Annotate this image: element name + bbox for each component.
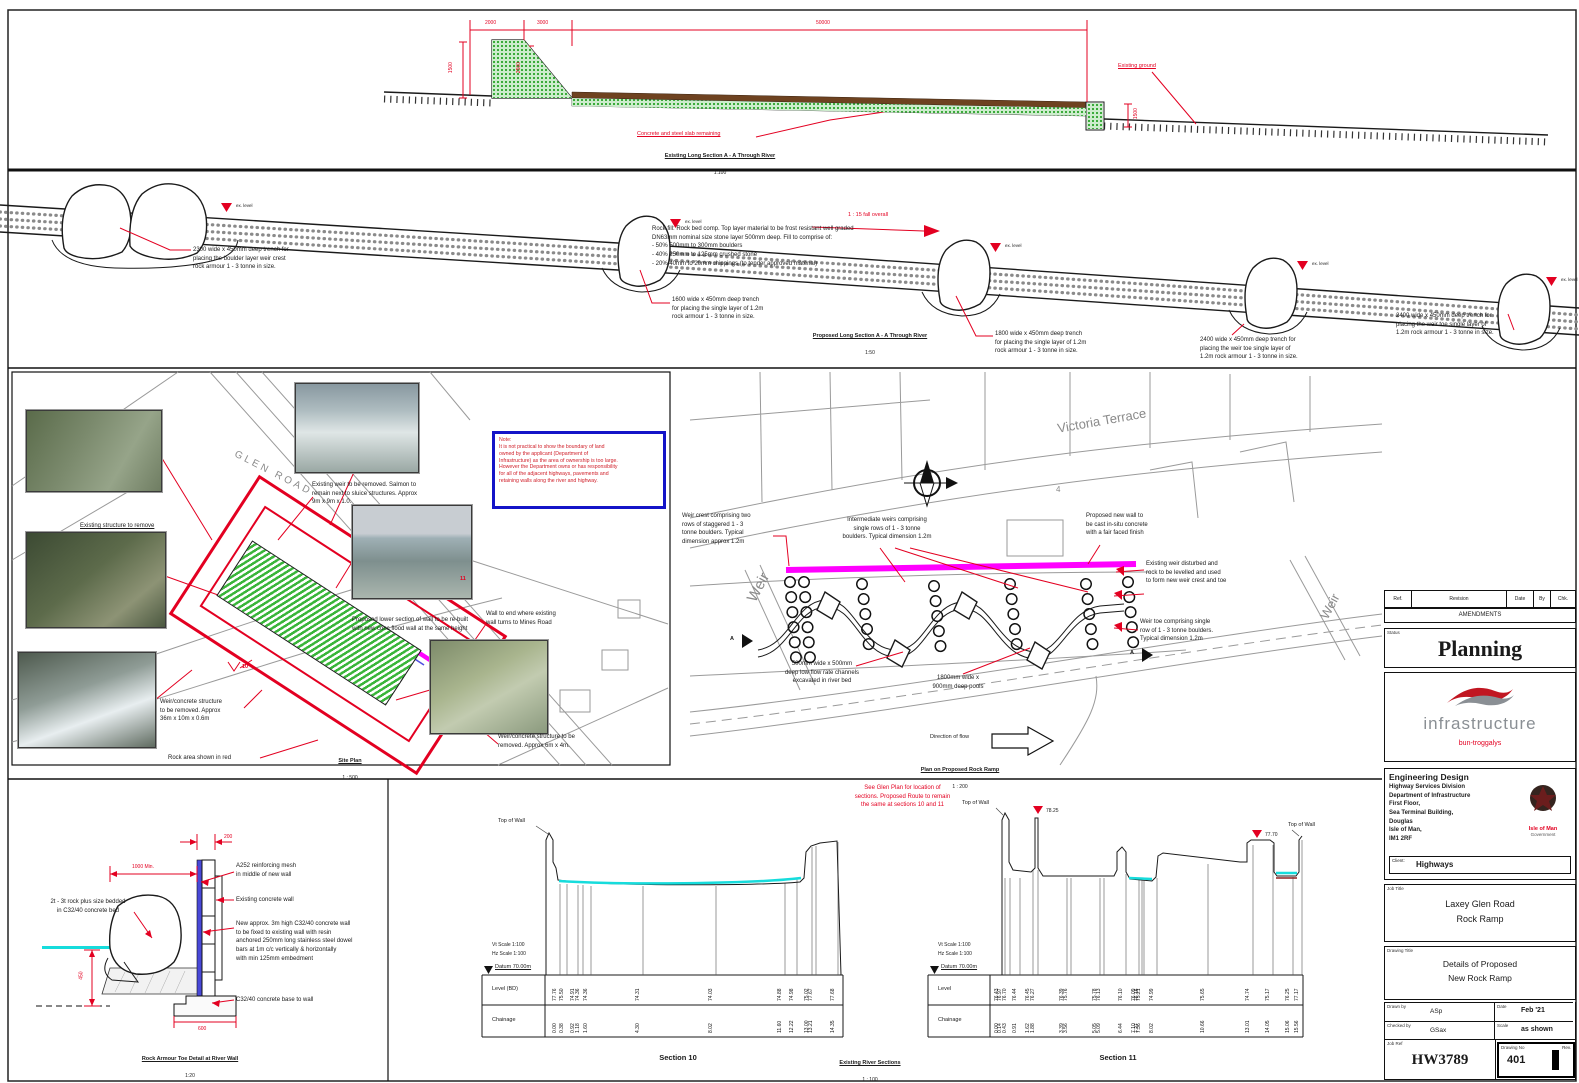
level-marker-1: ex. level	[236, 203, 253, 210]
ramp-annotation-wall: Proposed new wall to be cast in-situ con…	[1086, 512, 1182, 538]
s10-chainage-values: 0.000.380.921.181.604.308.0211.6012.2213…	[482, 1008, 843, 1035]
s11-top-of-wall-right: Top of Wall	[1288, 822, 1315, 830]
date-label: Date	[1497, 1004, 1507, 1009]
trench-annotation-5: 2400 wide x 450mm deep trench for placin…	[1396, 312, 1521, 338]
department-heading: Engineering Design	[1389, 772, 1575, 782]
dim-mid: 2500	[516, 62, 523, 73]
drawing-title-box: Drawing Title Details of Proposed New Ro…	[1384, 946, 1576, 1000]
site-photo-5	[18, 652, 156, 748]
crest-caption-2: Government	[1517, 832, 1569, 837]
s10-hz-scale: Hz Scale 1:100	[492, 951, 526, 958]
drawn-by-value: ASp	[1430, 1008, 1442, 1015]
job-title-line2: Rock Ramp	[1385, 914, 1575, 924]
job-title-box: Job Title Laxey Glen Road Rock Ramp	[1384, 884, 1576, 942]
iom-crest: Isle of Man Government	[1517, 783, 1569, 837]
drawing-no-cell: Drawing No Rev. 401	[1497, 1042, 1575, 1078]
toe-annotation-base: C32/40 concrete base to wall	[236, 996, 346, 1005]
client-value: Highways	[1416, 860, 1453, 869]
toe-annotation-new-wall: New approx. 3m high C32/40 concrete wall…	[236, 920, 386, 963]
level-marker-5: ex. level	[1561, 277, 1578, 284]
ramp-annotation-channels: 500mm wide x 500mm deep low flow rate ch…	[772, 660, 872, 686]
dim-3000: 3000	[537, 20, 548, 27]
dim-right: 1500	[1133, 108, 1140, 119]
department-box: Engineering Design Highway Services Divi…	[1384, 768, 1576, 880]
ramp-annotation-crest: Weir crest comprising two rows of stagge…	[682, 512, 774, 547]
site-annotation-7: Weir/concrete structure to be removed. A…	[498, 733, 603, 750]
toe-dim-200: 200	[224, 834, 232, 841]
level-marker-4: ex. level	[1312, 261, 1329, 268]
rev-label: Rev.	[1562, 1045, 1571, 1050]
iom-crest-icon	[1521, 783, 1565, 821]
jobref-label: Job Ref	[1387, 1041, 1403, 1046]
rev-divider	[1552, 1050, 1559, 1070]
s11-hz-scale: Hz Scale 1:100	[938, 951, 972, 958]
amendments-col-by: By	[1534, 591, 1551, 607]
toe-annotation-rock: 2t - 3t rock plus size bedded in C32/40 …	[42, 898, 134, 915]
leader-ground-label: Existing ground	[1118, 63, 1156, 71]
site-photo-2	[295, 383, 419, 473]
site-photo-6	[430, 640, 548, 734]
checked-by-value: GSax	[1430, 1027, 1446, 1034]
amendments-col-ref: Ref.	[1385, 591, 1412, 607]
jobref-cell: Job Ref HW3789	[1385, 1040, 1496, 1079]
jobref-row: Job Ref HW3789 Drawing No Rev. 401	[1384, 1040, 1576, 1080]
note-box: Note: It is not practical to show the bo…	[492, 431, 666, 509]
section-10-title: Section 10	[638, 1053, 718, 1064]
section-10-linework	[482, 826, 843, 1037]
existing-long-section-drawing	[384, 20, 1548, 142]
drawn-by-label: Drawn by	[1387, 1004, 1406, 1009]
scale-label: Scale	[1497, 1023, 1508, 1028]
end-block-fill	[1087, 103, 1103, 129]
ramp-annotation-intermediate: Intermediate weirs comprising single row…	[826, 516, 948, 542]
logo-subtitle: bun-troggalys	[1385, 740, 1575, 747]
s11-vt-scale: Vt Scale 1:100	[938, 942, 971, 949]
site-photo-4	[352, 505, 472, 599]
s11-marker-left: 78.25	[1046, 808, 1059, 815]
dim-left: 1500	[448, 62, 455, 73]
logo-box: infrastructure bun-troggalys	[1384, 672, 1576, 762]
drawing-no-value: 401	[1507, 1054, 1573, 1066]
amendments-col-revision: Revision	[1412, 591, 1507, 607]
toe-dim-1000: 1000 Min.	[132, 864, 154, 871]
amendments-title: AMENDMENTS	[1384, 608, 1576, 623]
amendments-col-chk: Chk.	[1551, 591, 1575, 607]
rockfill-annotation: Rock fill: Rock bed comp. Top layer mate…	[652, 225, 902, 268]
level-marker-3: ex. level	[1005, 243, 1022, 250]
drawing-no-label: Drawing No	[1501, 1045, 1525, 1050]
site-annotation-5: Weir/concrete structure to be removed. A…	[160, 698, 245, 724]
dim-50000: 50000	[816, 20, 830, 27]
status-box: Status Planning	[1384, 628, 1576, 668]
site-plan-title: Site Plan 1 : 500	[310, 748, 390, 783]
section-a-marker-right: A	[1130, 650, 1134, 658]
s10-vt-scale: Vt Scale 1:100	[492, 942, 525, 949]
dim-2000: 2000	[485, 20, 496, 27]
meta-box: Drawn by ASp Date Feb '21 Checked by GSa…	[1384, 1002, 1576, 1040]
scale-value: as shown	[1521, 1026, 1553, 1033]
fall-label: 1 : 15 fall overall	[848, 212, 888, 220]
toe-dim-450: 450	[79, 971, 86, 979]
drawing-title-line1: Details of Proposed	[1385, 959, 1575, 969]
trench-annotation-2: 1600 wide x 450mm deep trench for placin…	[672, 296, 792, 322]
toe-dim-600: 600	[198, 1026, 206, 1033]
drawn-by-cell: Drawn by ASp	[1385, 1002, 1495, 1021]
site-annotation-6: Rock area shown in red	[168, 754, 260, 763]
ramp-annotation-existing: Existing weir disturbed and rock to be l…	[1146, 560, 1252, 586]
trench-annotation-4: 2400 wide x 450mm deep trench for placin…	[1200, 336, 1325, 362]
drawing-title-label: Drawing Title	[1387, 948, 1413, 953]
flow-label: Direction of flow	[930, 734, 969, 742]
checked-by-label: Checked by	[1387, 1023, 1411, 1028]
logo-word: infrastructure	[1385, 714, 1575, 734]
flow-arrow-icon	[992, 727, 1053, 755]
existing-long-section-title: Existing Long Section A - A Through Rive…	[630, 143, 810, 178]
s11-datum: Datum 70.00m	[941, 964, 977, 972]
s10-level-values: 77.7675.5074.9174.3674.3674.3174.0374.88…	[482, 977, 843, 1003]
ramp-annotation-toe: Weir toe comprising single row of 1 - 3 …	[1140, 618, 1240, 644]
amendments-header-row: Ref. Revision Date By Chk.	[1384, 590, 1576, 608]
amendments-col-date: Date	[1507, 591, 1534, 607]
ramp-annotation-pools: 1800mm wide x 900mm deep pools	[926, 674, 990, 691]
client-box: Client: Highways	[1389, 856, 1571, 874]
section-marker-11: 11	[460, 576, 466, 584]
toe-detail-title: Rock Armour Toe Detail at River Wall 1:2…	[100, 1046, 280, 1081]
proposed-long-section-title: Proposed Long Section A - A Through Rive…	[790, 323, 950, 358]
site-annotation-3: Proposed lower section of wall to be re-…	[352, 616, 502, 633]
site-annotation-4: Wall to end where existing wall turns to…	[486, 610, 586, 627]
s10-top-of-wall: Top of Wall	[498, 818, 525, 826]
site-photo-1	[26, 410, 162, 492]
trench-annotation-3: 1800 wide x 450mm deep trench for placin…	[995, 330, 1115, 356]
date-value: Feb '21	[1521, 1007, 1545, 1014]
toe-annotation-existing-wall: Existing concrete wall	[236, 896, 331, 905]
parcel-4-label: 4	[1056, 484, 1060, 496]
site-annotation-2: Existing structure to remove	[80, 522, 195, 531]
site-annotation-1: Existing weir to be removed. Salmon to r…	[312, 481, 442, 507]
date-cell: Date Feb '21	[1495, 1002, 1573, 1021]
checked-by-cell: Checked by GSax	[1385, 1021, 1495, 1040]
infrastructure-logo-icon	[1443, 681, 1517, 709]
trench-annotation-1: 2300 wide x 450mm deep trench for placin…	[193, 246, 321, 272]
s11-marker-right: 77.70	[1265, 832, 1278, 839]
site-photo-3	[26, 532, 166, 628]
s11-level-values: 76.4376.9776.7076.4476.4576.2776.3975.76…	[928, 977, 1303, 1003]
rock-ramp-plan-linework	[690, 372, 1382, 765]
section-marker-10: 10	[242, 664, 248, 672]
s11-top-of-wall-left: Top of Wall	[962, 800, 989, 808]
s11-chainage-values: 0.000.140.430.911.621.883.393.565.055.09…	[928, 1008, 1303, 1035]
drawing-title-line2: New Rock Ramp	[1385, 973, 1575, 983]
status-value: Planning	[1385, 636, 1575, 662]
existing-river-sections-title: Existing River Sections 1 : 100	[810, 1050, 930, 1083]
s10-datum: Datum 70.00m	[495, 964, 531, 972]
jobref-value: HW3789	[1385, 1052, 1495, 1069]
leader-slab-label: Concrete and steel slab remaining	[637, 131, 720, 139]
section-a-marker-left: A	[730, 636, 734, 644]
toe-annotation-mesh: A252 reinforcing mesh in middle of new w…	[236, 862, 331, 879]
status-label: Status	[1387, 630, 1400, 635]
job-title-line1: Laxey Glen Road	[1385, 899, 1575, 909]
job-title-label: Job Title	[1387, 886, 1404, 891]
client-label: Client:	[1392, 858, 1405, 863]
scale-cell: Scale as shown	[1495, 1021, 1573, 1040]
drawing-sheet: 2000 3000 50000 1500 2500 1500 Concrete …	[0, 0, 1579, 1083]
section-11-title: Section 11	[1078, 1053, 1158, 1064]
